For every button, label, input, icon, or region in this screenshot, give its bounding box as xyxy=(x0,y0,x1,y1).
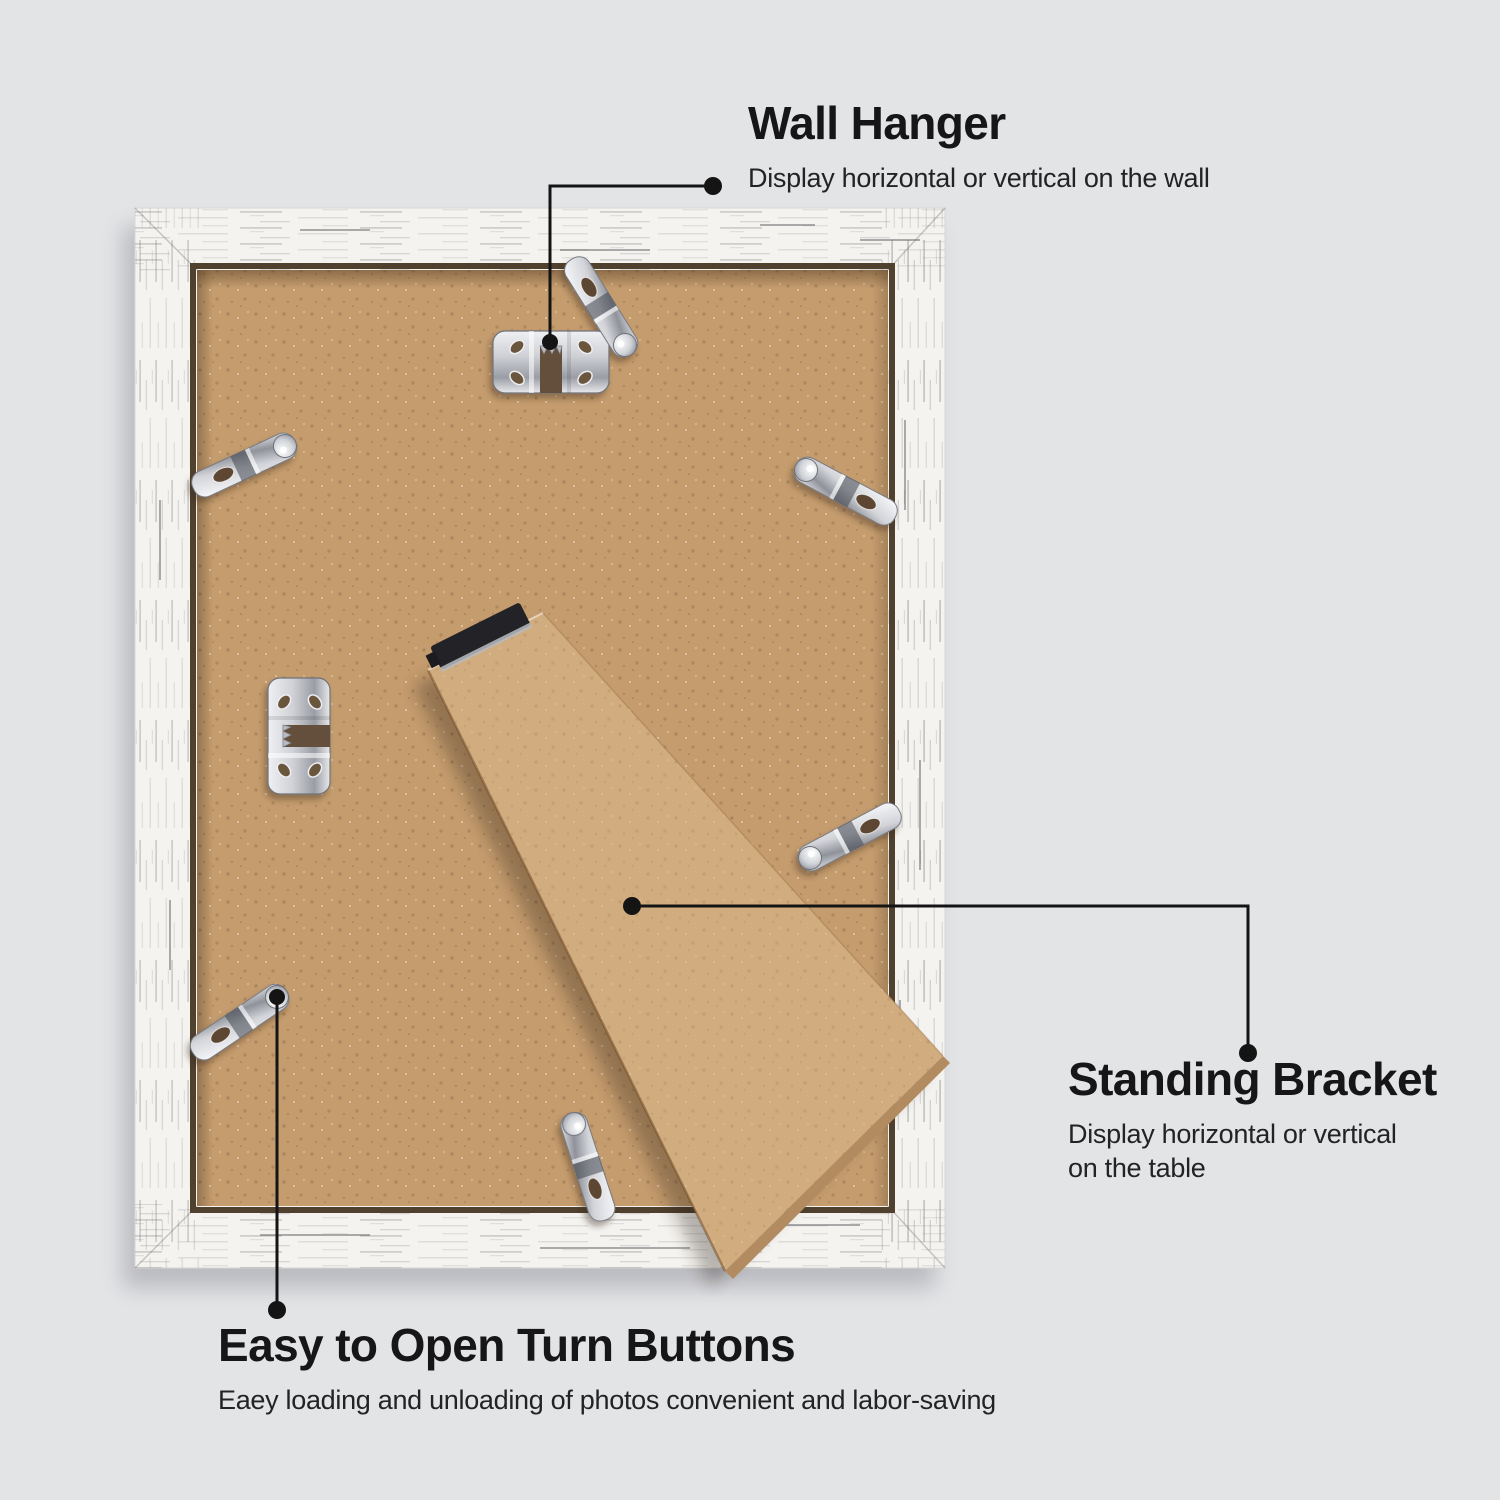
standing-bracket-description-line2: on the table xyxy=(1068,1152,1437,1185)
wall-hanger-description: Display horizontal or vertical on the wa… xyxy=(748,162,1210,195)
wall-hanger-title: Wall Hanger xyxy=(748,98,1210,150)
standing-bracket-title: Standing Bracket xyxy=(1068,1054,1437,1106)
turn-buttons-callout: Easy to Open Turn Buttons Eaey loading a… xyxy=(218,1320,996,1416)
standing-bracket-description-line1: Display horizontal or vertical xyxy=(1068,1118,1437,1151)
standing-bracket-callout: Standing Bracket Display horizontal or v… xyxy=(1068,1054,1437,1185)
wall-hanger-side xyxy=(268,678,330,794)
frame-back-scene xyxy=(0,0,1500,1500)
turn-buttons-description: Eaey loading and unloading of photos con… xyxy=(218,1384,996,1417)
turn-buttons-title: Easy to Open Turn Buttons xyxy=(218,1320,996,1372)
wall-hanger-callout: Wall Hanger Display horizontal or vertic… xyxy=(748,98,1210,194)
product-image: Wall Hanger Display horizontal or vertic… xyxy=(0,0,1500,1500)
